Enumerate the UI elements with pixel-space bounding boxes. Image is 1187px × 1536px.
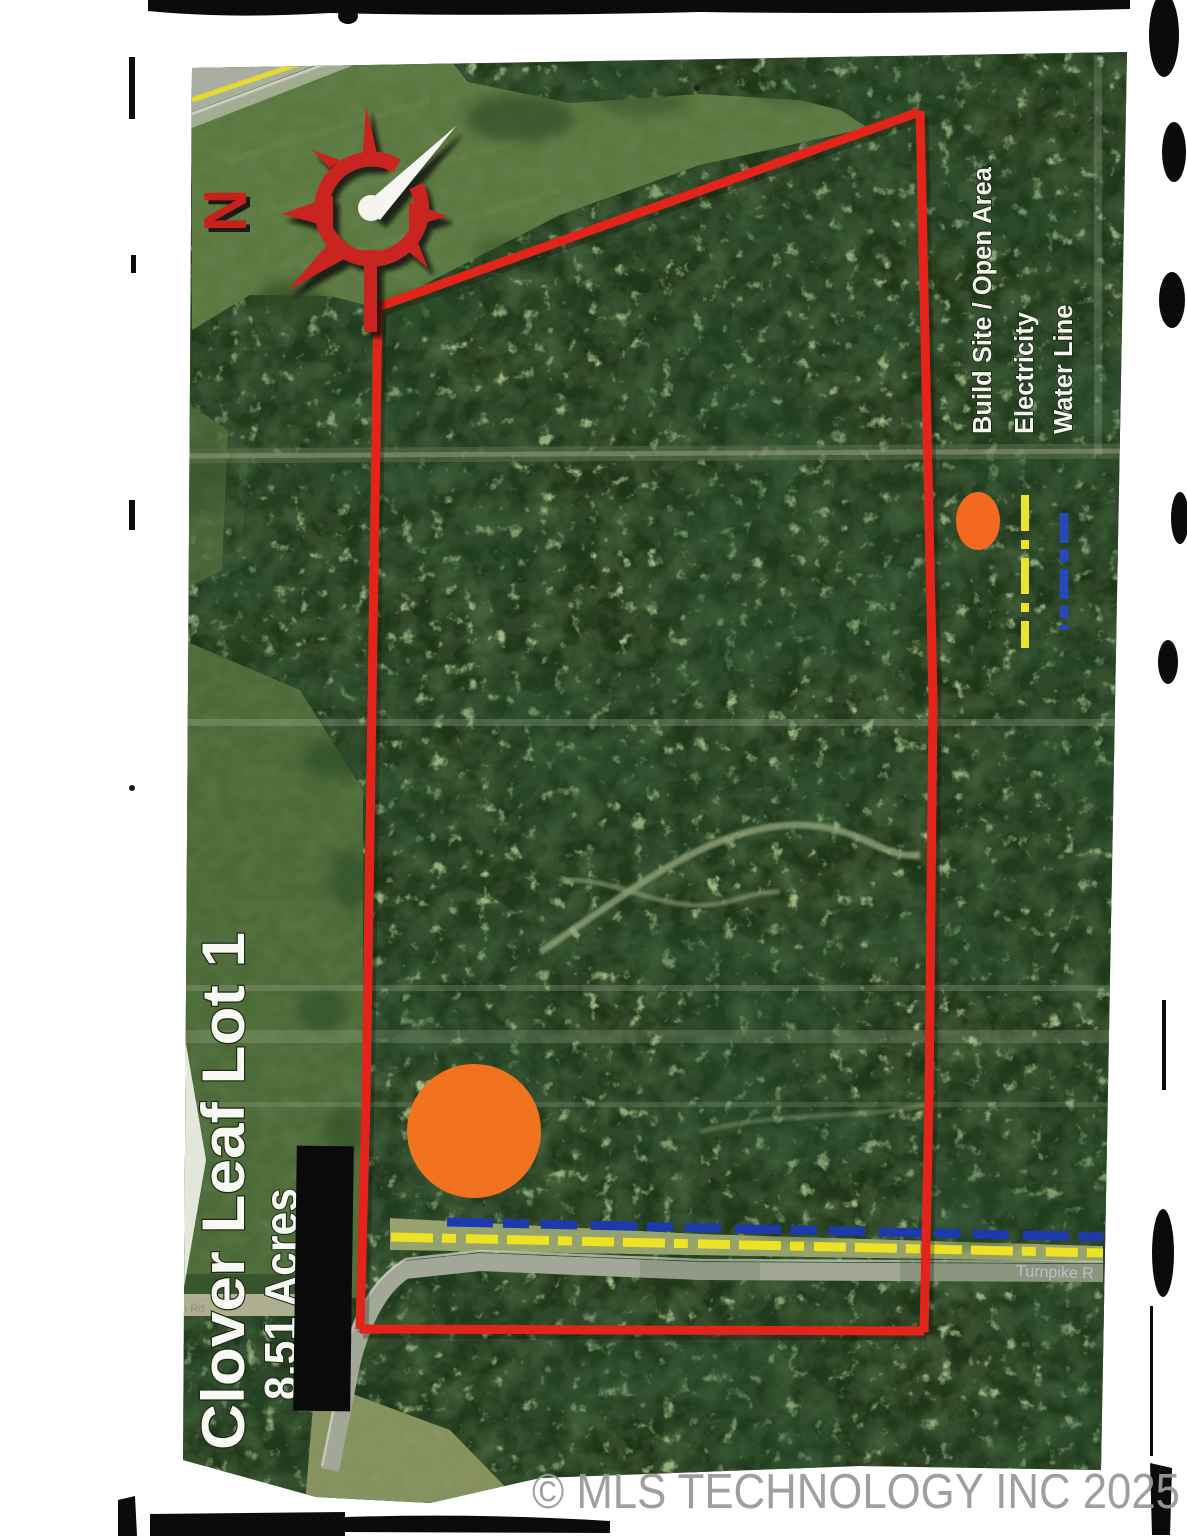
svg-text:Build Site / Open Area: Build Site / Open Area bbox=[969, 166, 997, 434]
svg-text:Electricity: Electricity bbox=[1011, 311, 1039, 434]
svg-text:Clover Leaf Lot 1: Clover Leaf Lot 1 bbox=[190, 932, 257, 1450]
svg-text:N: N bbox=[192, 189, 259, 232]
svg-text:Turnpike R: Turnpike R bbox=[1016, 1263, 1094, 1283]
svg-text:Water Line: Water Line bbox=[1050, 305, 1078, 434]
svg-text:© MLS TECHNOLOGY INC 2025: © MLS TECHNOLOGY INC 2025 bbox=[532, 1465, 1180, 1519]
